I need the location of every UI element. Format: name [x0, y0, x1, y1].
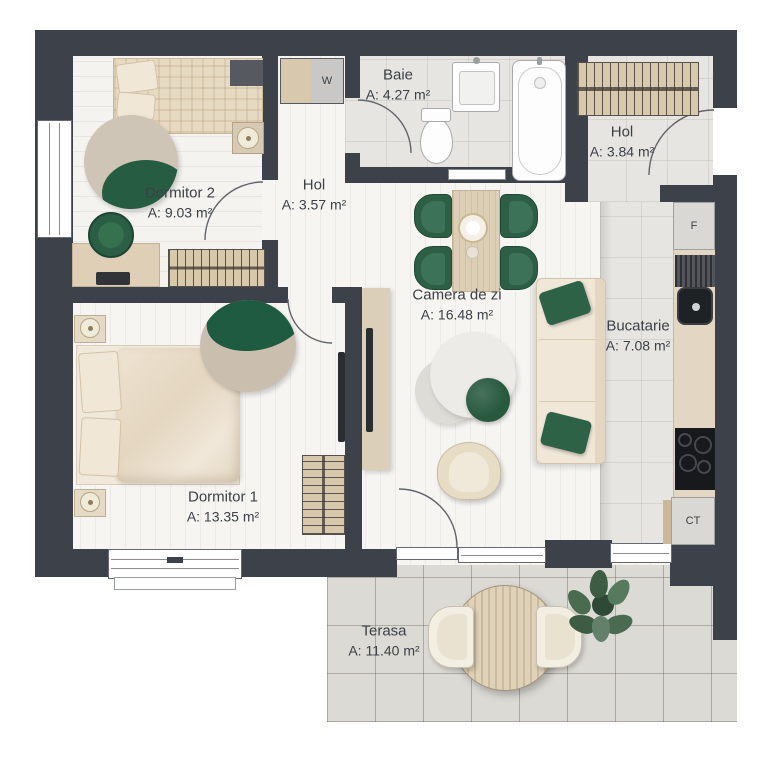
entrance-door-opening	[713, 108, 737, 175]
window-frame-line	[59, 123, 60, 235]
window-living-terrace	[458, 547, 546, 563]
table-bowl	[458, 213, 488, 243]
room-area: A: 4.27 m²	[366, 86, 431, 106]
bookshelf	[168, 249, 265, 287]
room-name: Dormitor 1	[187, 487, 259, 508]
sofa-backrest	[595, 279, 605, 463]
room-name: Camera de zi	[412, 285, 501, 306]
plant-leaf	[592, 616, 611, 643]
baie-wall-glass-inset	[448, 169, 506, 180]
desk-chair	[88, 212, 134, 258]
room-label-camera-de-zi: Camera de zi A: 16.48 m²	[412, 285, 501, 326]
rug-green-part	[201, 300, 296, 360]
kitchen-counter	[673, 202, 715, 545]
lamp	[80, 318, 100, 338]
toilet	[420, 118, 453, 164]
kitchen-tap	[692, 303, 700, 311]
wardrobe-marker: W	[310, 58, 344, 104]
pillow	[115, 59, 159, 94]
window-frame-line	[49, 123, 50, 235]
toilet-tank	[421, 108, 451, 122]
room-name: Hol	[590, 122, 655, 143]
room-label-hol-2: Hol A: 3.84 m²	[590, 122, 655, 163]
wall-left	[35, 30, 73, 577]
wall-top	[35, 30, 737, 56]
pillow	[78, 351, 122, 414]
kitchen-drainer	[675, 255, 715, 287]
room-area: A: 16.48 m²	[412, 306, 501, 326]
wall-right-upper	[713, 56, 737, 108]
potted-plant	[566, 570, 638, 642]
sofa-seam	[539, 401, 595, 402]
room-name: Dormitor 2	[145, 183, 215, 204]
boiler-marker: CT	[671, 497, 715, 545]
room-label-bucatarie: Bucatarie A: 7.08 m²	[606, 316, 671, 357]
chair-seat	[509, 201, 533, 233]
tv-bedroom	[338, 352, 345, 442]
pillow	[79, 417, 122, 477]
terrace-chair	[428, 606, 474, 668]
sofa-seam	[539, 339, 595, 340]
bathroom-sink	[452, 62, 500, 112]
terrace-chair-seat	[437, 614, 467, 660]
room-name: Terasa	[348, 621, 419, 642]
wall-tv	[345, 287, 362, 549]
room-label-dormitor-1: Dormitor 1 A: 13.35 m²	[187, 487, 259, 528]
burner	[678, 433, 692, 447]
window-sill-dormitor1	[114, 577, 236, 590]
sink-basin	[459, 71, 495, 105]
room-area: A: 3.57 m²	[282, 196, 347, 216]
kitchen-sink	[677, 287, 713, 325]
bathtub-drain	[534, 77, 546, 89]
burner	[679, 454, 697, 472]
chair-seat	[509, 253, 533, 285]
floor-plan: W F CT	[0, 0, 772, 759]
bathtub	[512, 60, 566, 181]
window-dormitor2	[37, 120, 72, 238]
room-area: A: 11.40 m²	[348, 642, 419, 662]
armchair	[437, 442, 501, 500]
room-label-dormitor-2: Dormitor 2 A: 9.03 m²	[145, 183, 215, 224]
wall-dormitor2-hall-upper	[262, 56, 278, 180]
sink-tap	[473, 57, 480, 64]
boiler-side-panel	[663, 500, 671, 544]
burner	[694, 436, 712, 454]
room-label-baie: Baie A: 4.27 m²	[366, 65, 431, 106]
window-kitchen-terrace	[610, 543, 672, 563]
table-bowl-inner	[466, 221, 480, 235]
dining-chair	[414, 194, 452, 238]
laptop	[96, 272, 130, 285]
room-name: Hol	[282, 175, 347, 196]
chair-seat	[421, 253, 445, 285]
burner	[697, 460, 711, 474]
room-name: Bucatarie	[606, 316, 671, 337]
wall-right	[713, 175, 737, 640]
chair-seat	[421, 201, 445, 233]
room-label-hol-1: Hol A: 3.57 m²	[282, 175, 347, 216]
room-area: A: 13.35 m²	[187, 508, 259, 528]
rug-green	[466, 378, 510, 422]
dining-chair	[414, 246, 452, 290]
table-small-plate	[466, 246, 479, 259]
desk-chair-seat	[98, 222, 124, 248]
room-area: A: 3.84 m²	[590, 143, 655, 163]
room-area: A: 7.08 m²	[606, 337, 671, 357]
wall-bottom-living	[545, 540, 612, 568]
window-mullion	[167, 557, 183, 563]
entry-wardrobe	[577, 62, 699, 116]
dining-chair	[500, 246, 538, 290]
terrace-door-leaf	[396, 547, 458, 560]
wall-hol2-kitchen	[660, 185, 718, 202]
window-dormitor1	[108, 549, 242, 579]
lamp	[80, 492, 100, 512]
wall-baie-jamb-upper	[345, 56, 360, 98]
dresser	[302, 455, 345, 535]
window-frame-line	[613, 553, 669, 554]
dining-chair	[500, 194, 538, 238]
room-name: Baie	[366, 65, 431, 86]
bathtub-tap	[537, 57, 542, 65]
armchair-seat	[449, 452, 489, 492]
window-frame-line	[461, 555, 543, 556]
room-label-terasa: Terasa A: 11.40 m²	[348, 621, 419, 662]
room-area: A: 9.03 m²	[145, 204, 215, 224]
window-frame-line	[111, 568, 239, 569]
lamp	[237, 127, 259, 149]
hob	[675, 428, 715, 490]
tv-living	[366, 328, 373, 432]
rug-round	[200, 300, 296, 392]
fridge-marker: F	[673, 202, 715, 250]
headboard-shelf	[230, 60, 263, 86]
